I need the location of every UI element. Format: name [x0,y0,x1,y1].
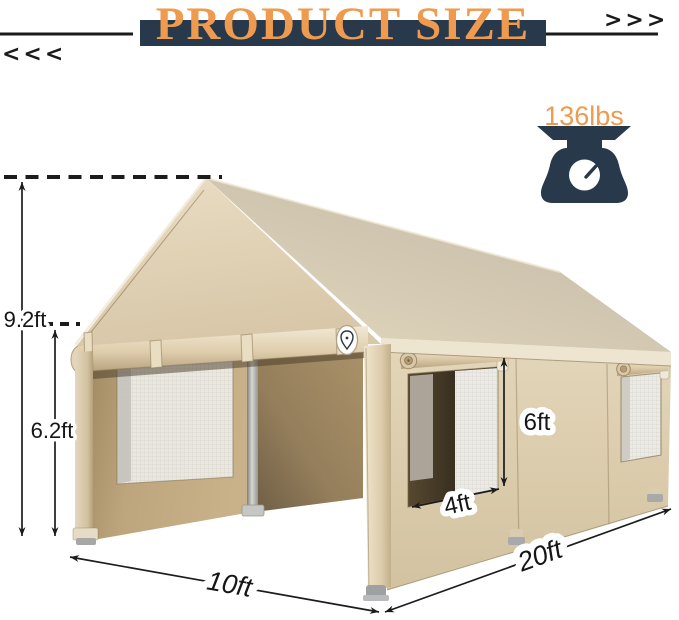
side-height-label: 6.2ft [31,418,74,443]
side-window-rear [621,373,661,462]
window-height-label: 6ft [524,409,551,436]
interior [93,340,366,540]
side-window-front [408,367,498,507]
scale-icon [537,126,631,203]
brand-badge-icon [337,326,358,355]
front-right-pole [363,344,391,601]
peak-height-label: 9.2ft [4,307,47,332]
center-pole-foot [242,505,264,516]
chevrons-right-icon: >>> [604,8,668,33]
carport-illustration [71,178,671,601]
front-width-label: 10ft [205,565,256,603]
chevrons-left-icon: <<< [2,42,66,67]
product-size-infographic: <<< PRODUCT SIZE >>> 136lbs [0,0,679,620]
header: <<< PRODUCT SIZE >>> [0,0,668,67]
interior-wall-right [255,340,363,512]
page-title: PRODUCT SIZE [156,0,530,50]
weight-spec: 136lbs [537,101,631,203]
